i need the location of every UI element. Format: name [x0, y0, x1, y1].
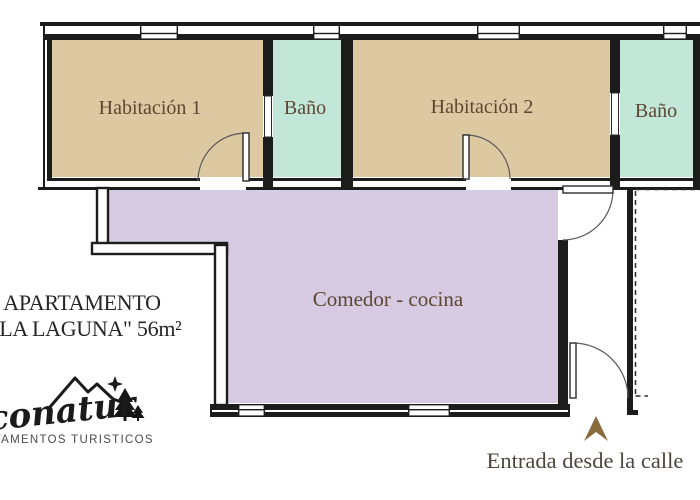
wall-left-outer	[43, 26, 45, 190]
wall-hab2-bano2-upper	[610, 34, 620, 93]
wall-hall-right-foot	[627, 410, 638, 415]
floorplan-page: Habitación 1 Baño Habitación 2 Baño Come…	[0, 0, 700, 500]
wall-comedor-right	[558, 240, 568, 405]
wall-bottom-core-line	[212, 410, 568, 412]
door-comedor-hall	[563, 186, 613, 240]
wall-rooms-bottom-c1	[511, 178, 700, 181]
wall-rooms-bottom-a1	[47, 178, 200, 181]
label-bano-2: Baño	[635, 100, 677, 122]
door-bano-1	[265, 96, 272, 137]
title-line-1: APARTAMENTO	[3, 290, 160, 315]
label-bano-1: Baño	[284, 97, 326, 119]
door-bano-2	[612, 93, 619, 135]
floorplan-drawing: Habitación 1 Baño Habitación 2 Baño Come…	[0, 0, 700, 500]
dashed-boundary	[636, 190, 700, 397]
wall-rooms-bottom-b2	[246, 187, 466, 190]
logo: Econatur APARTAMENTOS TURISTICOS	[0, 376, 154, 446]
wall-left-inner	[47, 34, 52, 178]
wall-comedor-left-lower	[215, 245, 227, 405]
label-habitacion-1: Habitación 1	[99, 97, 202, 119]
wall-hall-right	[627, 187, 633, 415]
title-line-2: "LA LAGUNA" 56m²	[0, 316, 182, 341]
wall-rooms-bottom-b1	[246, 178, 466, 181]
label-comedor-cocina: Comedor - cocina	[313, 287, 464, 311]
door-entrance	[570, 343, 628, 398]
apartment-title: APARTAMENTO "LA LAGUNA" 56m²	[0, 290, 182, 341]
window-comedor-left	[238, 404, 265, 417]
wall-bano1-hab2	[341, 34, 353, 190]
wall-hab2-bano2-lower	[610, 135, 620, 190]
wall-top-outer	[40, 22, 700, 26]
entrance-label: Entrada desde la calle	[487, 448, 684, 473]
entrance-annotation: Entrada desde la calle	[487, 416, 684, 473]
wall-hab1-bano1-lower	[263, 137, 273, 190]
logo-tagline-text: APARTAMENTOS TURISTICOS	[0, 434, 154, 446]
wall-rooms-bottom-a2	[38, 187, 200, 190]
wall-right-exterior	[693, 34, 700, 190]
wall-comedor-step	[92, 243, 227, 254]
window-comedor-right	[408, 404, 450, 417]
entrance-arrow-icon	[584, 416, 608, 441]
wall-comedor-left-upper	[97, 188, 108, 248]
wall-hab1-bano1-upper	[263, 34, 273, 96]
label-habitacion-2: Habitación 2	[431, 96, 534, 118]
